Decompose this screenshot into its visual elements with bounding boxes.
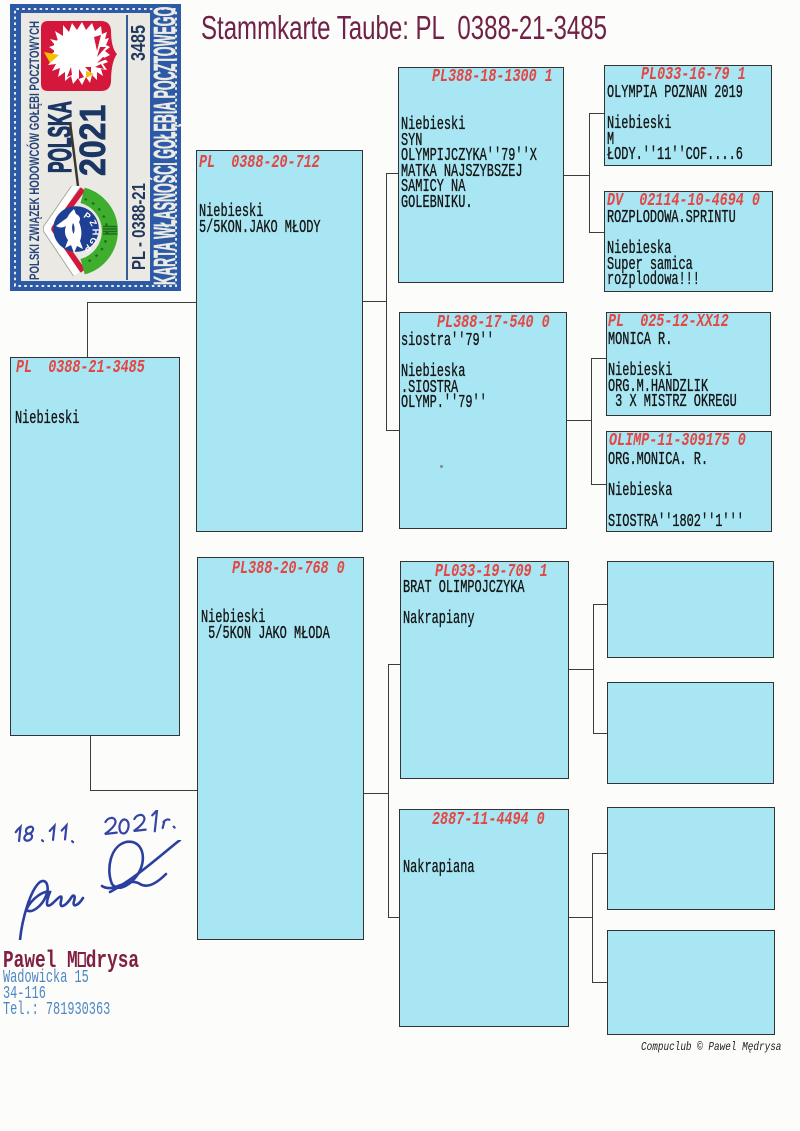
svg-text:H: H <box>91 229 101 236</box>
